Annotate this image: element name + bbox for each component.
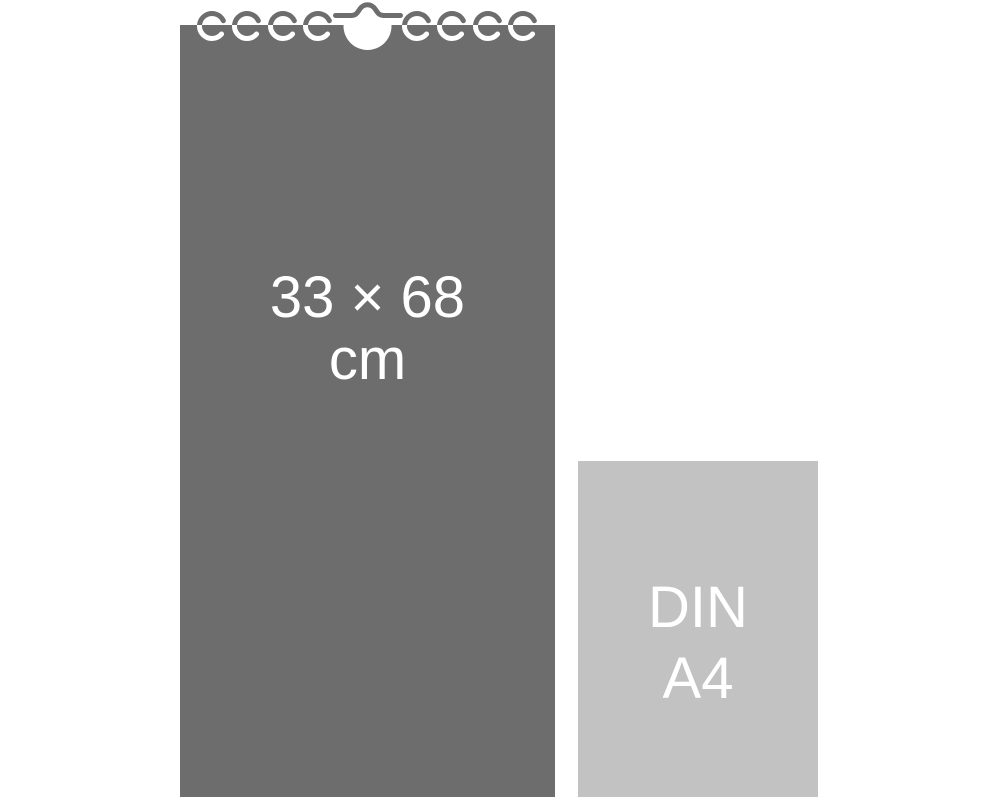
hanger-hole-cutout: [344, 2, 392, 50]
calendar-sheet: [180, 25, 555, 797]
din-a4-line1: DIN: [648, 575, 748, 640]
calendar-size-label: 33 × 68 cm: [180, 267, 555, 391]
din-a4-line2: A4: [663, 646, 734, 711]
calendar-size-line1: 33 × 68: [270, 265, 465, 330]
spiral-binding-decoration: [0, 0, 1000, 70]
calendar-size-line2: cm: [329, 327, 406, 392]
din-a4-label: DIN A4: [578, 572, 818, 714]
size-comparison-diagram: 33 × 68 cm DIN A4: [0, 0, 1000, 800]
